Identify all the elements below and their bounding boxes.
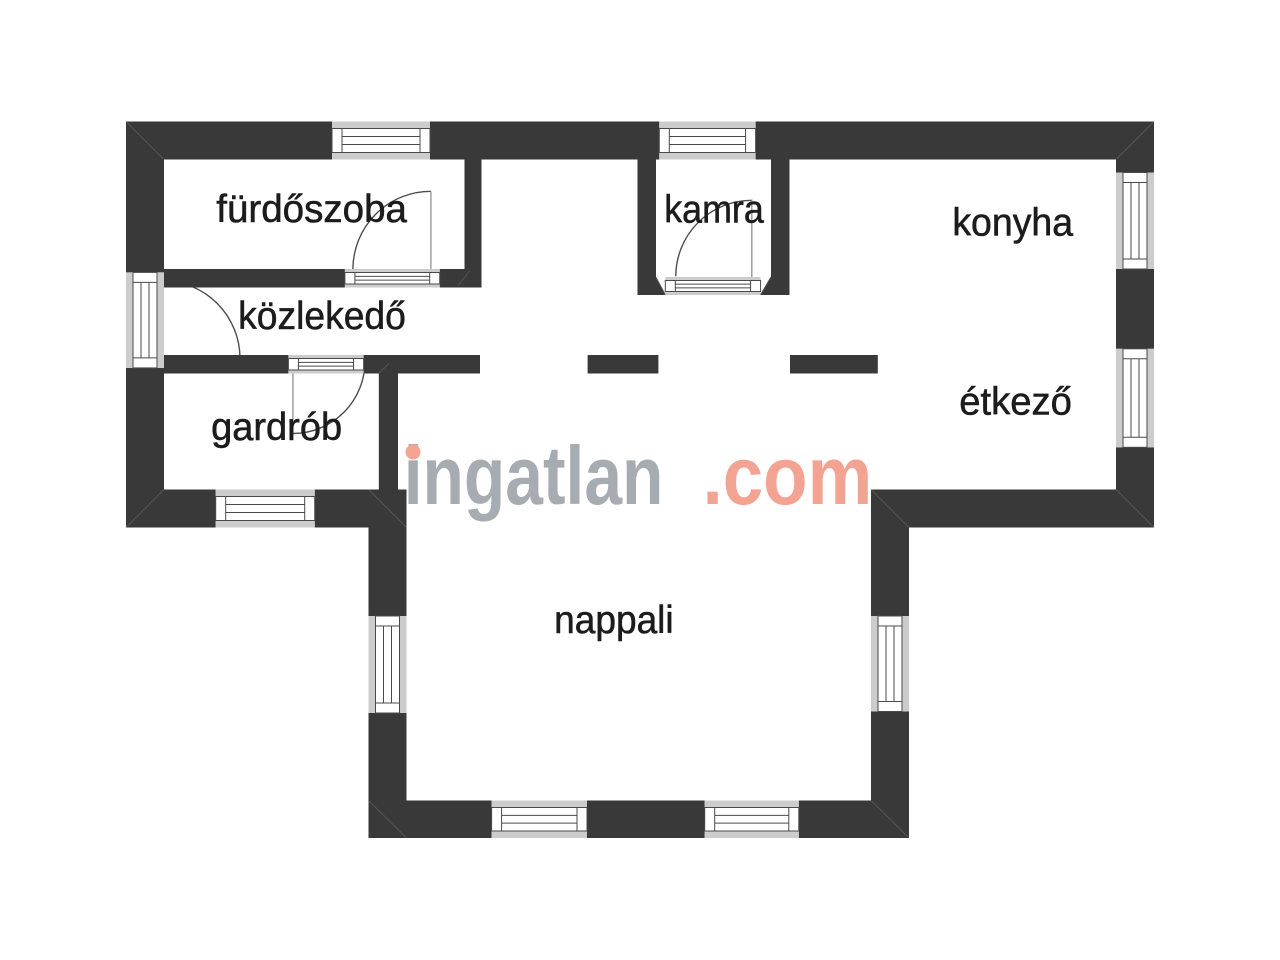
svg-text:kamra: kamra xyxy=(664,189,764,232)
svg-text:étkező: étkező xyxy=(959,380,1072,423)
svg-text:.com: .com xyxy=(703,429,873,522)
svg-text:nappali: nappali xyxy=(554,599,674,642)
svg-text:fürdőszoba: fürdőszoba xyxy=(216,188,407,231)
svg-text:ingatlan: ingatlan xyxy=(404,429,664,522)
svg-text:közlekedő: közlekedő xyxy=(238,295,406,338)
svg-text:konyha: konyha xyxy=(952,202,1073,245)
svg-text:gardrób: gardrób xyxy=(211,406,342,449)
